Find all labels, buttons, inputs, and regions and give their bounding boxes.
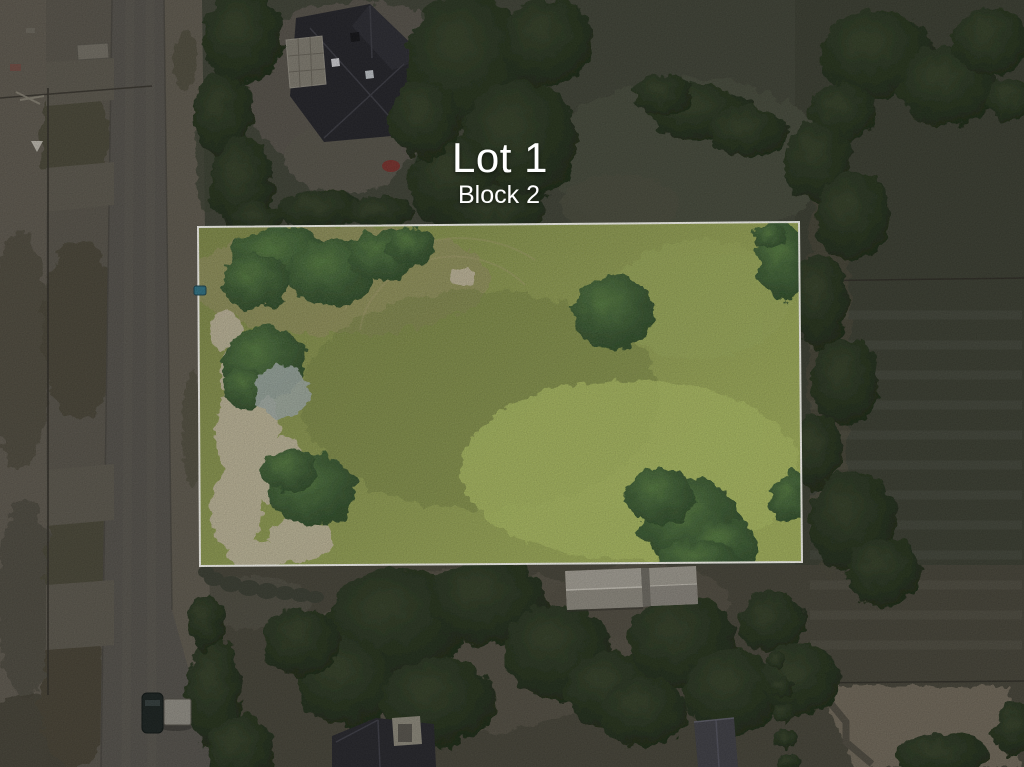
lot-label: Lot 1	[452, 134, 548, 181]
screenshot-root: Lot 1 Block 2	[0, 0, 1024, 767]
label-overlay: Lot 1 Block 2	[452, 134, 548, 209]
photo-grain-light	[0, 0, 1024, 767]
block-label: Block 2	[458, 181, 540, 209]
aerial-photo: Lot 1 Block 2	[0, 0, 1024, 767]
